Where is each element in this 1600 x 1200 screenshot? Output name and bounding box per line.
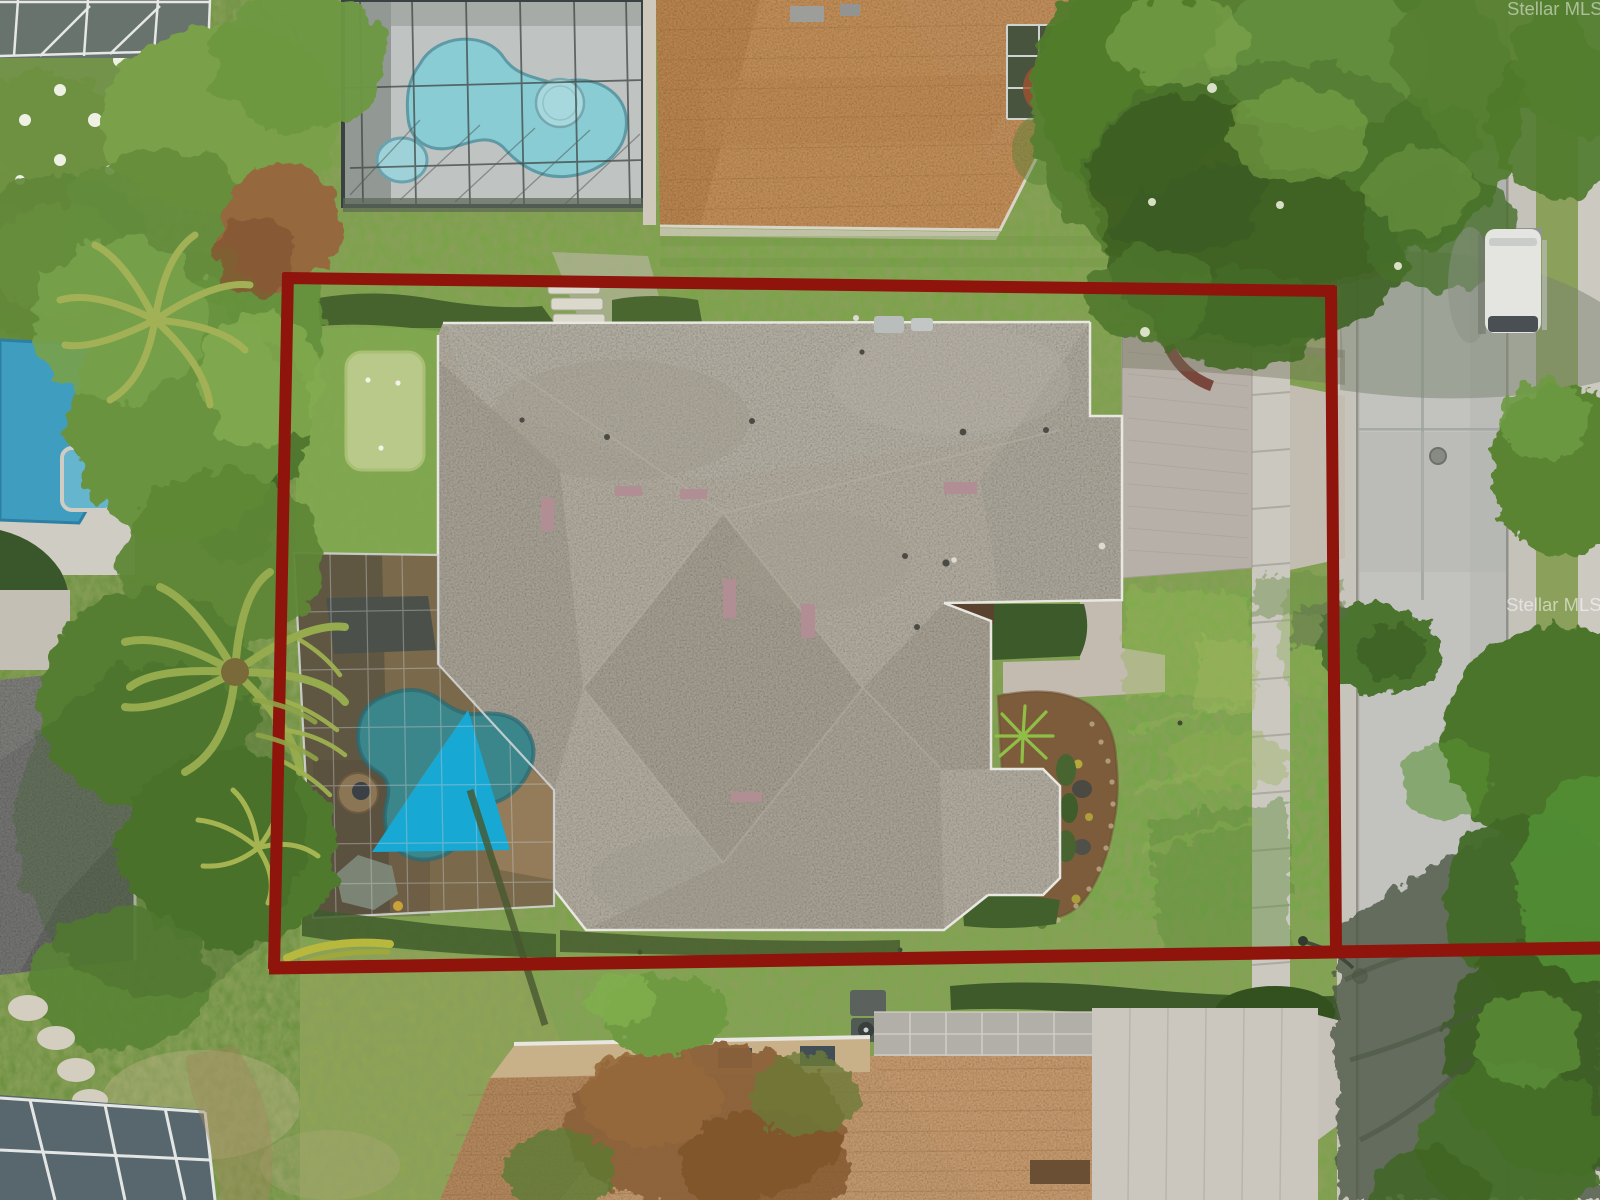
svg-text:Stellar MLS: Stellar MLS (1506, 594, 1600, 615)
svg-text:Stellar MLS: Stellar MLS (1507, 0, 1600, 19)
